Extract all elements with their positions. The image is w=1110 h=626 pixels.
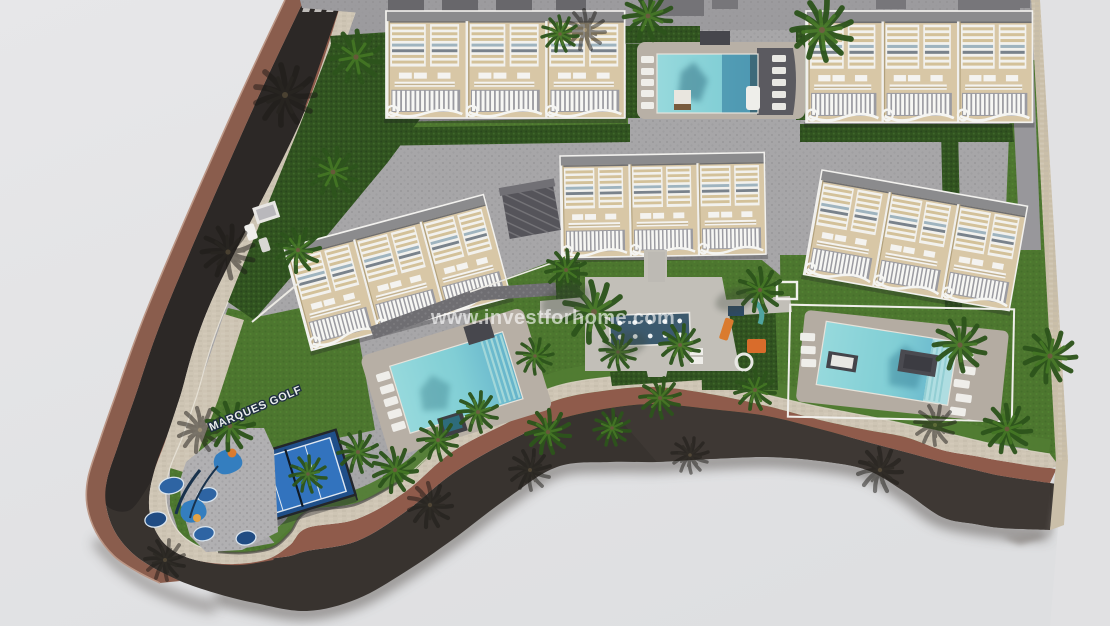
svg-text:www.investforhome.com: www.investforhome.com [430,307,675,329]
